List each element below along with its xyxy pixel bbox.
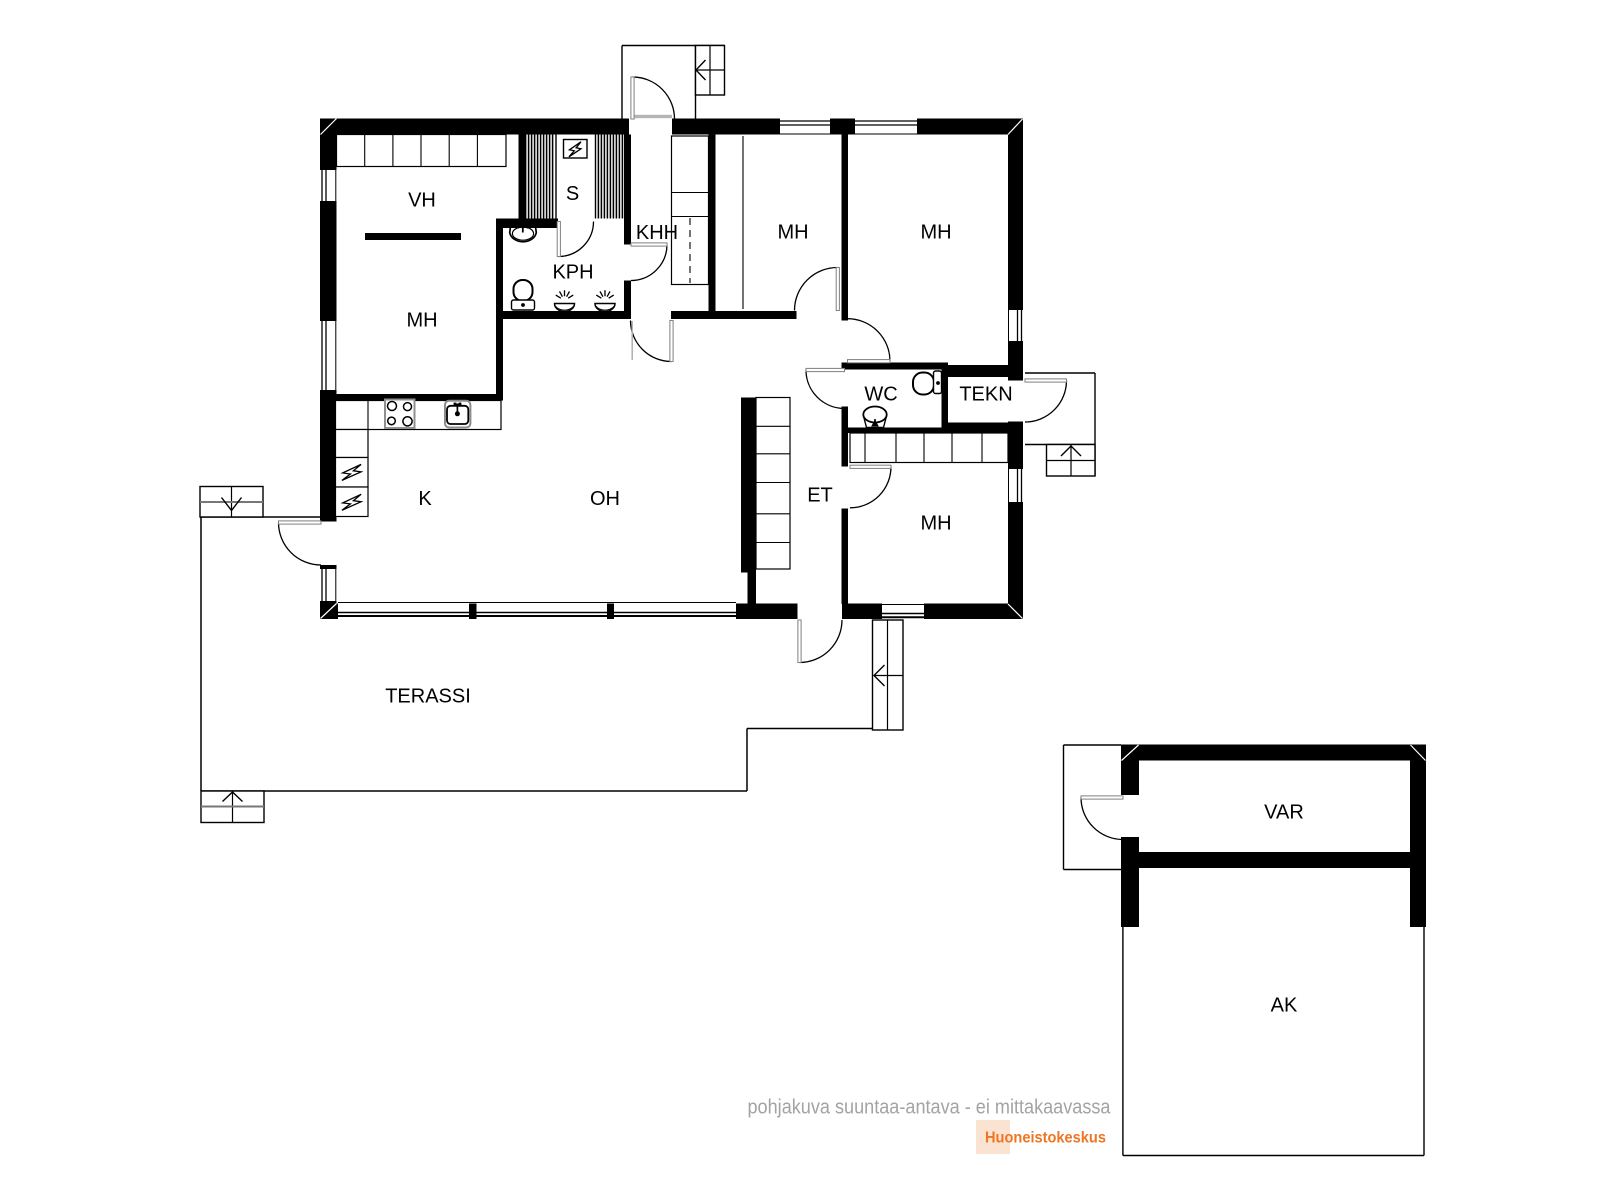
svg-text:MH: MH <box>920 513 951 535</box>
svg-text:VH: VH <box>408 190 436 212</box>
svg-text:AK: AK <box>1271 995 1298 1017</box>
svg-text:OH: OH <box>590 488 620 510</box>
svg-text:MH: MH <box>920 222 951 244</box>
svg-text:Huoneistokeskus: Huoneistokeskus <box>985 1130 1106 1147</box>
svg-text:pohjakuva suuntaa-antava - ei: pohjakuva suuntaa-antava - ei mittakaava… <box>748 1097 1112 1119</box>
svg-text:VAR: VAR <box>1264 802 1304 824</box>
svg-text:TERASSI: TERASSI <box>385 686 471 708</box>
svg-text:MH: MH <box>406 310 437 332</box>
svg-text:WC: WC <box>864 384 897 406</box>
svg-text:KHH: KHH <box>636 222 678 244</box>
svg-text:MH: MH <box>777 222 808 244</box>
svg-text:ET: ET <box>807 485 833 507</box>
svg-text:S: S <box>566 183 579 205</box>
svg-text:KPH: KPH <box>552 262 593 284</box>
svg-text:K: K <box>418 488 432 510</box>
svg-text:TEKN: TEKN <box>959 384 1012 406</box>
